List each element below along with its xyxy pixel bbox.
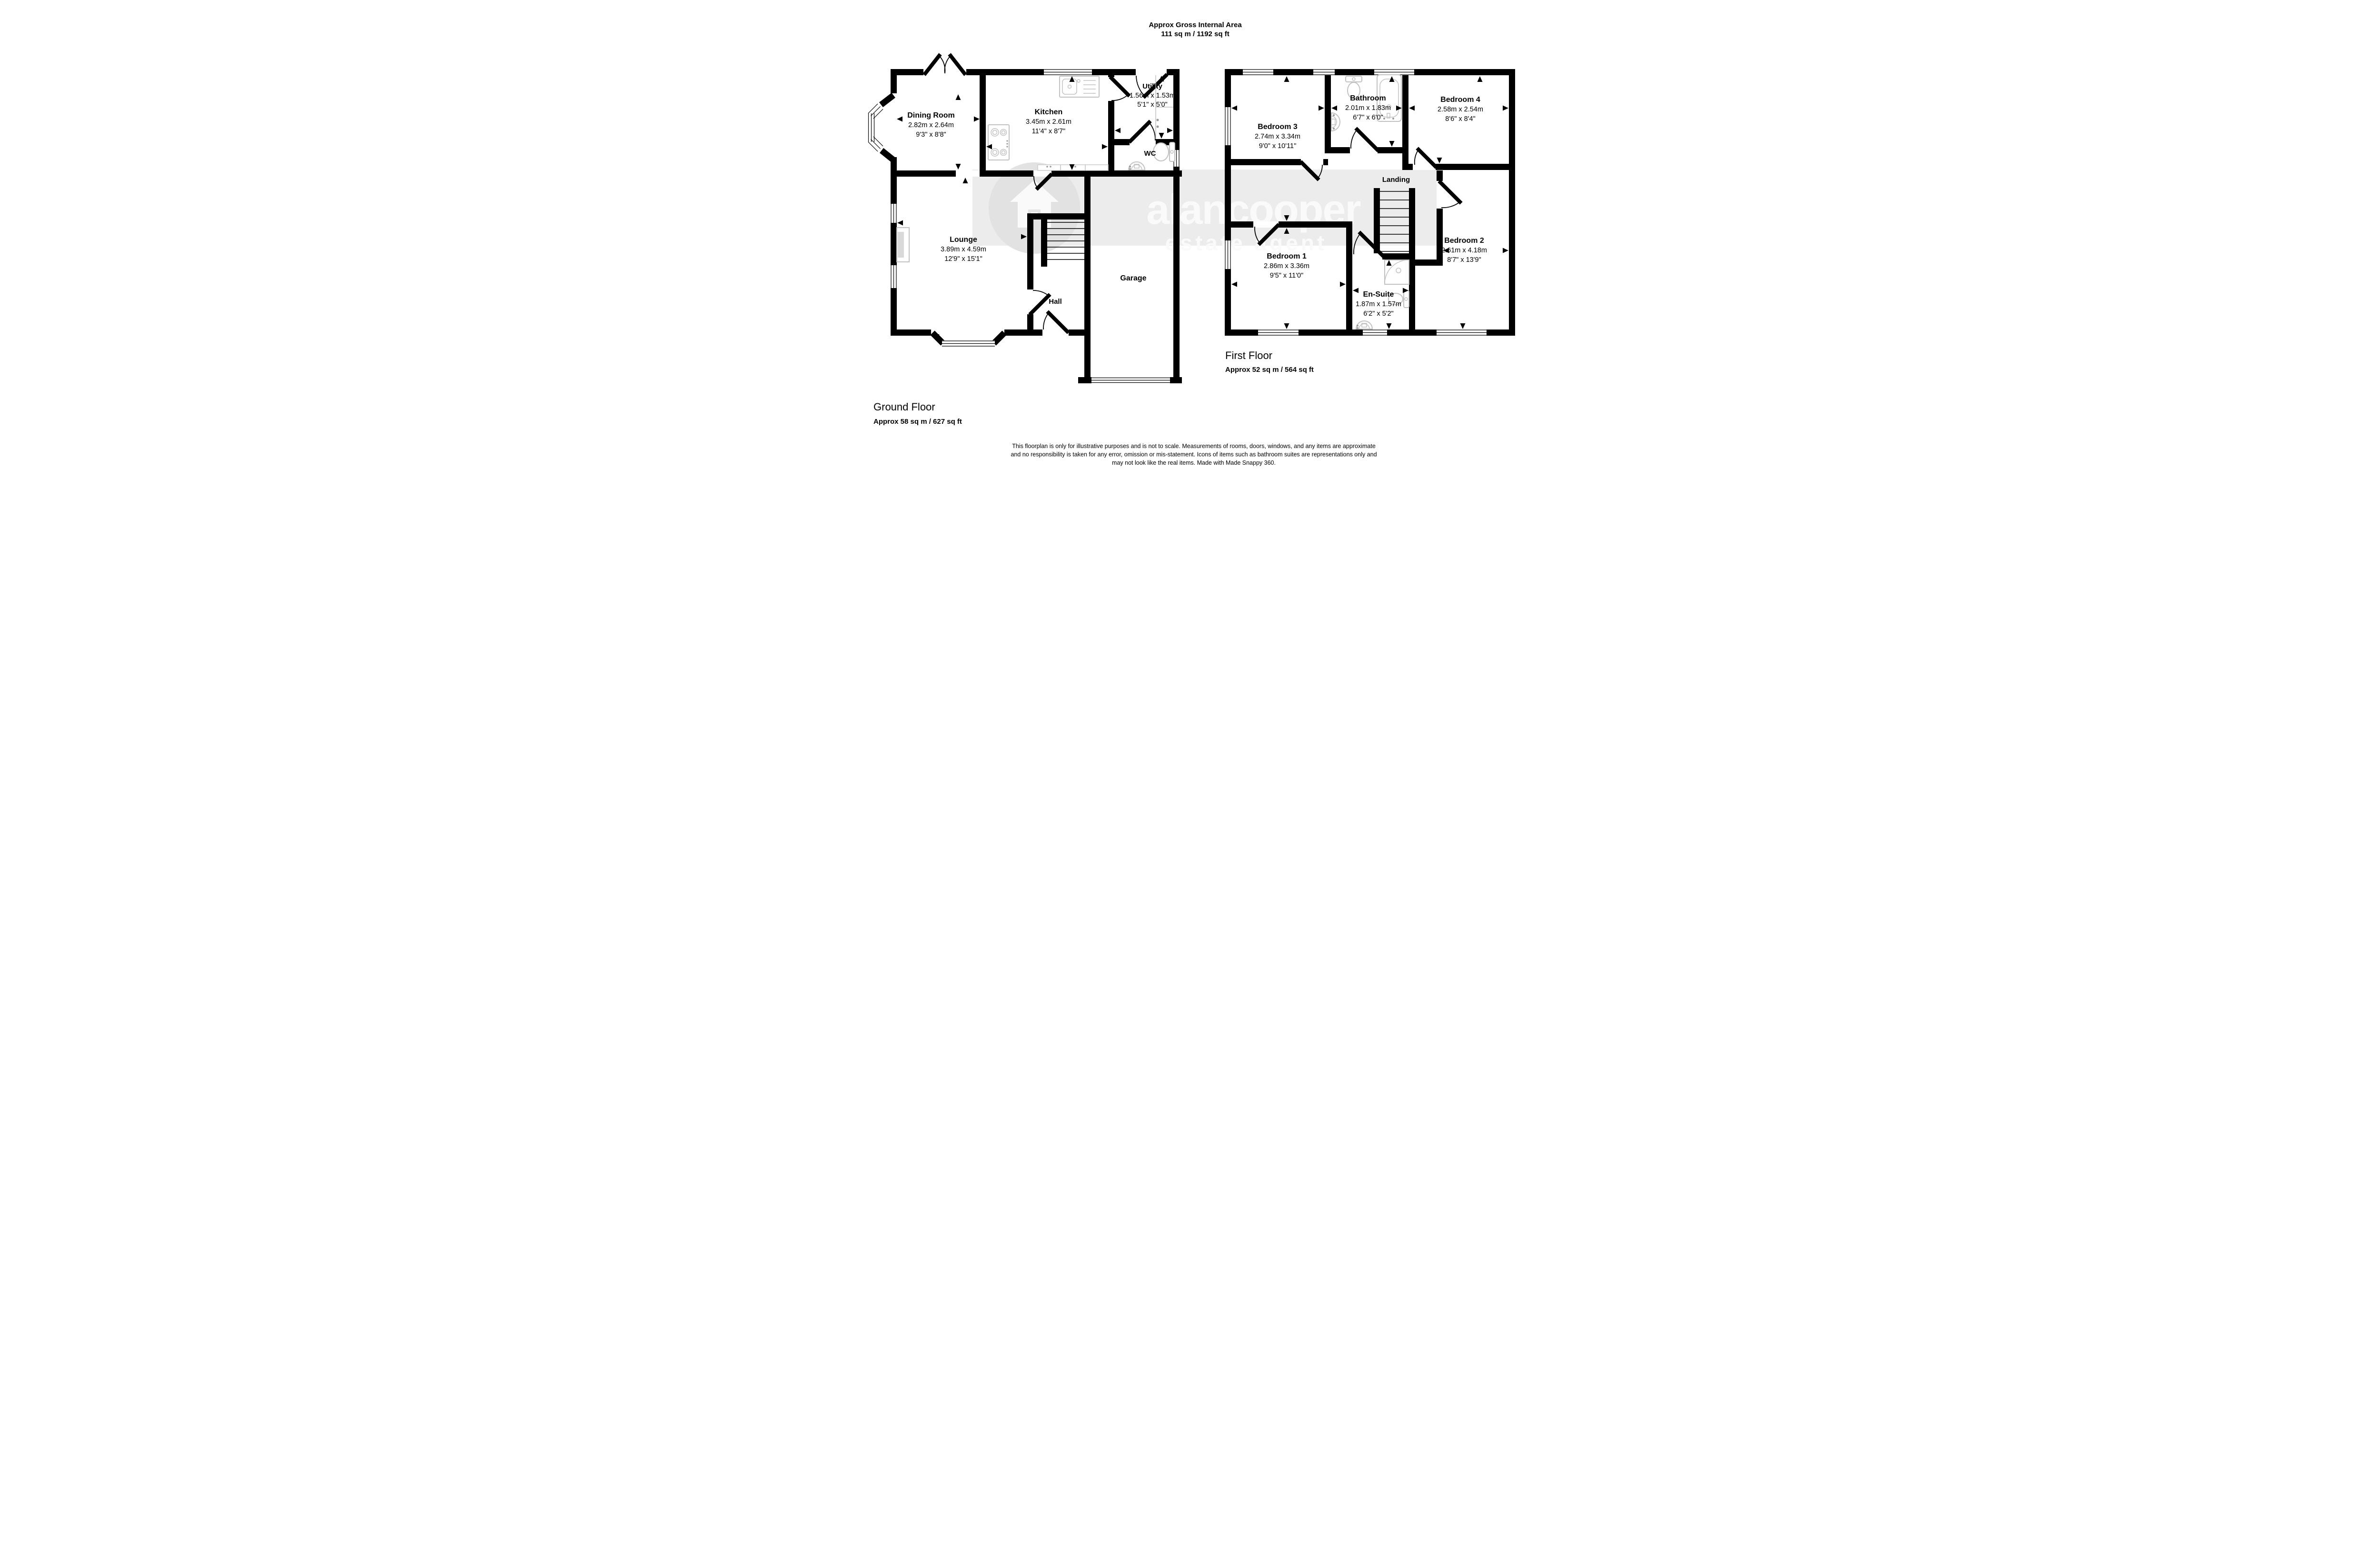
title-block: Approx Gross Internal Area 111 sq m / 11… [1149, 21, 1242, 38]
room-label-dining-imperial: 9'3" x 8'8" [916, 131, 946, 139]
room-label-utility-name: Utility [1142, 82, 1162, 90]
room-label-bathroom-metric: 2.01m x 1.83m [1345, 104, 1391, 112]
room-label-kitchen-imperial: 11'4" x 8'7" [1031, 128, 1065, 135]
basin-icon [1331, 113, 1340, 131]
floorplan-page: alancooper estate agent Approx Gross Int… [823, 0, 1558, 476]
disclaimer-line2: and no responsibility is taken for any e… [1011, 451, 1377, 458]
toilet-icon [1153, 142, 1175, 161]
room-label-bathroom-imperial: 6'7" x 6'0" [1353, 114, 1383, 121]
kitchen-sink-icon [1060, 76, 1099, 97]
room-label-ensuite-imperial: 6'2" x 5'2" [1363, 310, 1393, 318]
room-label-utility-metric: 1.56m x 1.53m [1130, 92, 1175, 100]
room-label-bedroom2-imperial: 8'7" x 13'9" [1447, 256, 1481, 264]
room-label-dining-name: Dining Room [907, 111, 955, 120]
room-label-hall: Hall [1049, 298, 1062, 306]
room-label-kitchen-name: Kitchen [1034, 108, 1062, 116]
room-label-lounge-name: Lounge [950, 236, 977, 244]
room-label-bedroom1-metric: 2.86m x 3.36m [1264, 262, 1309, 270]
room-label-ensuite-name: En-Suite [1363, 290, 1394, 299]
disclaimer-line1: This floorplan is only for illustrative … [1012, 443, 1376, 449]
room-label-ensuite-metric: 1.87m x 1.57m [1356, 300, 1401, 308]
room-label-landing: Landing [1382, 176, 1409, 184]
room-label-wc: WC [1144, 150, 1156, 158]
fireplace-icon [897, 228, 909, 262]
room-label-bedroom2-name: Bedroom 2 [1444, 237, 1484, 245]
room-label-lounge-imperial: 12'9" x 15'1" [944, 255, 982, 263]
room-label-bedroom3-metric: 2.74m x 3.34m [1255, 133, 1300, 140]
room-label-kitchen-metric: 3.45m x 2.61m [1026, 118, 1071, 126]
disclaimer: This floorplan is only for illustrative … [1011, 443, 1377, 466]
watermark-tagline: estate agent [1165, 230, 1327, 255]
room-label-garage: Garage [1120, 274, 1146, 282]
room-label-bedroom1-imperial: 9'5" x 11'0" [1269, 272, 1303, 279]
floorplan-canvas: alancooper estate agent Approx Gross Int… [823, 0, 1558, 476]
room-label-bedroom3-imperial: 9'0" x 10'11" [1259, 142, 1296, 150]
room-label-utility-imperial: 5'1" x 5'0" [1137, 101, 1167, 109]
room-label-lounge-metric: 3.89m x 4.59m [941, 246, 986, 253]
page-title-line1: Approx Gross Internal Area [1149, 21, 1242, 29]
ground-floor-heading: Ground Floor [873, 401, 935, 413]
basin-icon [1129, 162, 1145, 170]
room-label-bedroom4-metric: 2.58m x 2.54m [1438, 106, 1483, 113]
page-title-line2: 111 sq m / 1192 sq ft [1161, 30, 1229, 38]
room-label-bathroom-name: Bathroom [1350, 94, 1386, 102]
first-floor-area: Approx 52 sq m / 564 sq ft [1225, 366, 1314, 374]
basin-icon [1356, 321, 1372, 329]
hob-icon [988, 125, 1009, 160]
disclaimer-line3: may not look like the real items. Made w… [1112, 459, 1276, 466]
room-label-bedroom4-name: Bedroom 4 [1440, 96, 1480, 104]
room-label-dining-metric: 2.82m x 2.64m [908, 121, 954, 129]
floor-headings: Ground Floor Approx 58 sq m / 627 sq ft … [873, 349, 1314, 426]
ground-floor-area: Approx 58 sq m / 627 sq ft [873, 418, 962, 426]
room-label-bedroom4-imperial: 8'6" x 8'4" [1445, 115, 1475, 123]
room-label-bedroom3-name: Bedroom 3 [1258, 123, 1298, 131]
room-label-bedroom1-name: Bedroom 1 [1267, 252, 1307, 260]
first-floor-heading: First Floor [1225, 349, 1272, 361]
room-label-bedroom2-metric: 2.61m x 4.18m [1441, 247, 1487, 254]
